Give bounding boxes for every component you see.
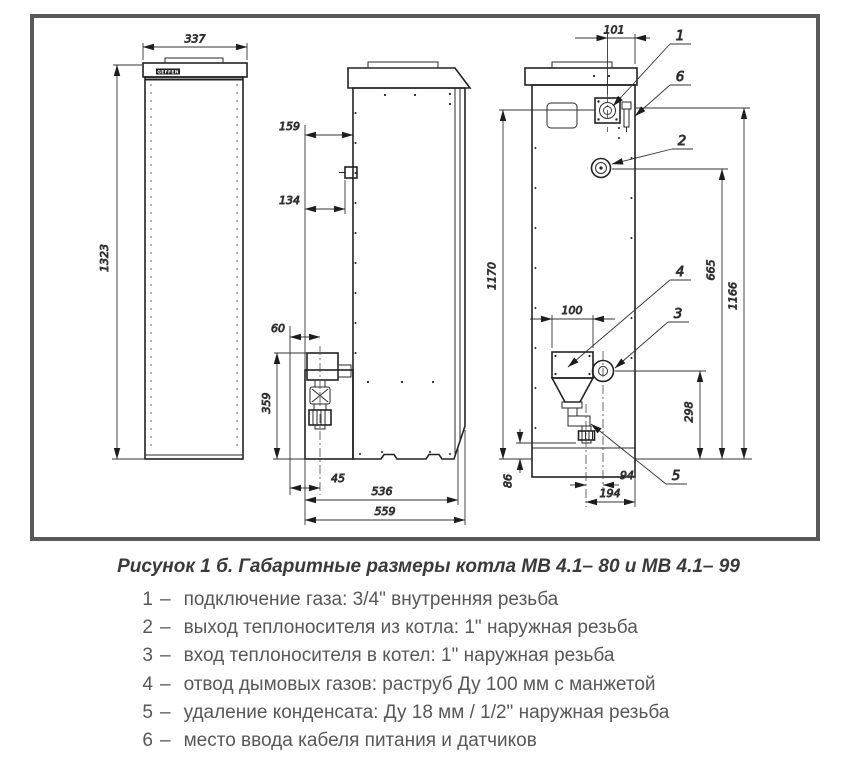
dim-side-top-offset: 159	[279, 120, 353, 135]
dim-side-fitting-offset: 134	[279, 180, 345, 214]
legend: 1 – подключение газа: 3/4" внутренняя ре…	[0, 589, 857, 758]
dim-back-gas-offset: 101	[575, 24, 650, 95]
svg-text:86: 86	[502, 474, 515, 488]
svg-text:1: 1	[676, 28, 685, 44]
front-view: GEFFEN	[143, 58, 247, 459]
legend-item-gas: 1 – подключение газа: 3/4" внутренняя ре…	[0, 589, 857, 617]
dim-front-width: 337	[143, 33, 247, 61]
svg-text:559: 559	[375, 505, 396, 518]
svg-text:1166: 1166	[727, 282, 740, 310]
svg-text:100: 100	[562, 304, 583, 317]
callout-gas: 1	[613, 28, 691, 106]
svg-text:134: 134	[279, 194, 300, 207]
svg-text:6: 6	[676, 69, 685, 85]
callout-outlet: 2	[612, 133, 693, 164]
back-view	[525, 62, 637, 507]
svg-text:536: 536	[372, 485, 393, 498]
condensate-drain	[568, 408, 595, 443]
svg-text:665: 665	[705, 260, 718, 281]
cable-entry	[622, 102, 631, 132]
dim-side-trap-offset: 60	[271, 322, 320, 337]
svg-text:45: 45	[331, 472, 345, 485]
svg-text:2: 2	[678, 133, 687, 149]
legend-num: 5	[137, 702, 153, 724]
legend-item-inlet: 3 – вход теплоносителя в котел: 1" наруж…	[0, 645, 857, 673]
side-view	[305, 62, 470, 495]
legend-item-cable: 6 – место ввода кабеля питания и датчико…	[0, 730, 857, 758]
dim-front-height: 1323	[98, 65, 145, 459]
callout-condensate: 5	[591, 424, 687, 484]
svg-text:4: 4	[676, 264, 685, 280]
boiler-dimension-drawing: GEFFEN 337 1323	[34, 18, 816, 537]
callout-inlet: 3	[615, 306, 689, 368]
legend-num: 4	[137, 674, 153, 696]
svg-text:GEFFEN: GEFFEN	[157, 70, 179, 76]
dim-back-condensate-height: 86	[502, 429, 577, 488]
svg-text:359: 359	[260, 393, 273, 414]
svg-text:194: 194	[600, 487, 621, 500]
legend-dash: –	[160, 589, 171, 611]
panel-screw-dots	[355, 93, 452, 455]
flue-outlet	[552, 352, 593, 408]
drawing-frame: GEFFEN 337 1323	[30, 14, 820, 541]
svg-text:94: 94	[620, 469, 634, 482]
rear-opening	[547, 103, 577, 128]
svg-text:101: 101	[604, 24, 625, 37]
legend-item-condensate: 5 – удаление конденсата: Ду 18 мм / 1/2"…	[0, 702, 857, 730]
legend-dash: –	[160, 645, 171, 667]
svg-text:298: 298	[683, 402, 696, 423]
callout-cable: 6	[635, 69, 691, 116]
dim-side-drain-offset: 45	[290, 472, 345, 488]
svg-text:1323: 1323	[98, 244, 111, 272]
legend-num: 3	[137, 645, 153, 667]
legend-dash: –	[160, 730, 171, 752]
svg-text:3: 3	[674, 306, 683, 322]
condensate-trap-box	[307, 353, 338, 380]
figure-caption: Рисунок 1 б. Габаритные размеры котла МВ…	[0, 556, 857, 578]
brand-logo: GEFFEN	[156, 69, 180, 76]
legend-text: отвод дымовых газов: раструб Ду 100 мм с…	[184, 674, 656, 696]
legend-text: место ввода кабеля питания и датчиков	[184, 730, 537, 752]
legend-num: 1	[137, 589, 153, 611]
legend-num: 2	[137, 617, 153, 639]
front-protrusion	[305, 370, 353, 459]
svg-text:159: 159	[279, 120, 300, 133]
legend-num: 6	[137, 730, 153, 752]
dim-side-depth: 559	[305, 430, 465, 525]
dim-side-trap-height: 359	[260, 353, 309, 459]
dim-back-gas-height: 1170	[486, 110, 596, 459]
svg-text:1170: 1170	[486, 262, 499, 290]
svg-text:60: 60	[271, 322, 285, 335]
legend-item-flue: 4 – отвод дымовых газов: раструб Ду 100 …	[0, 674, 857, 702]
legend-text: удаление конденсата: Ду 18 мм / 1/2" нар…	[184, 702, 670, 724]
svg-text:5: 5	[672, 468, 681, 484]
dim-back-flue-width: 100	[530, 304, 615, 348]
legend-text: выход теплоносителя из котла: 1" наружна…	[184, 617, 638, 639]
callout-flue: 4	[568, 264, 691, 367]
svg-text:337: 337	[185, 33, 206, 46]
dim-back-outlet-height: 665	[612, 169, 728, 459]
legend-dash: –	[160, 702, 171, 724]
legend-text: вход теплоносителя в котел: 1" наружная …	[184, 645, 615, 667]
legend-item-outlet: 2 – выход теплоносителя из котла: 1" нар…	[0, 617, 857, 645]
legend-dash: –	[160, 674, 171, 696]
legend-dash: –	[160, 617, 171, 639]
heat-outlet	[592, 159, 611, 178]
legend-text: подключение газа: 3/4" внутренняя резьба	[184, 589, 559, 611]
dim-side-depth-inner: 536	[305, 448, 458, 505]
